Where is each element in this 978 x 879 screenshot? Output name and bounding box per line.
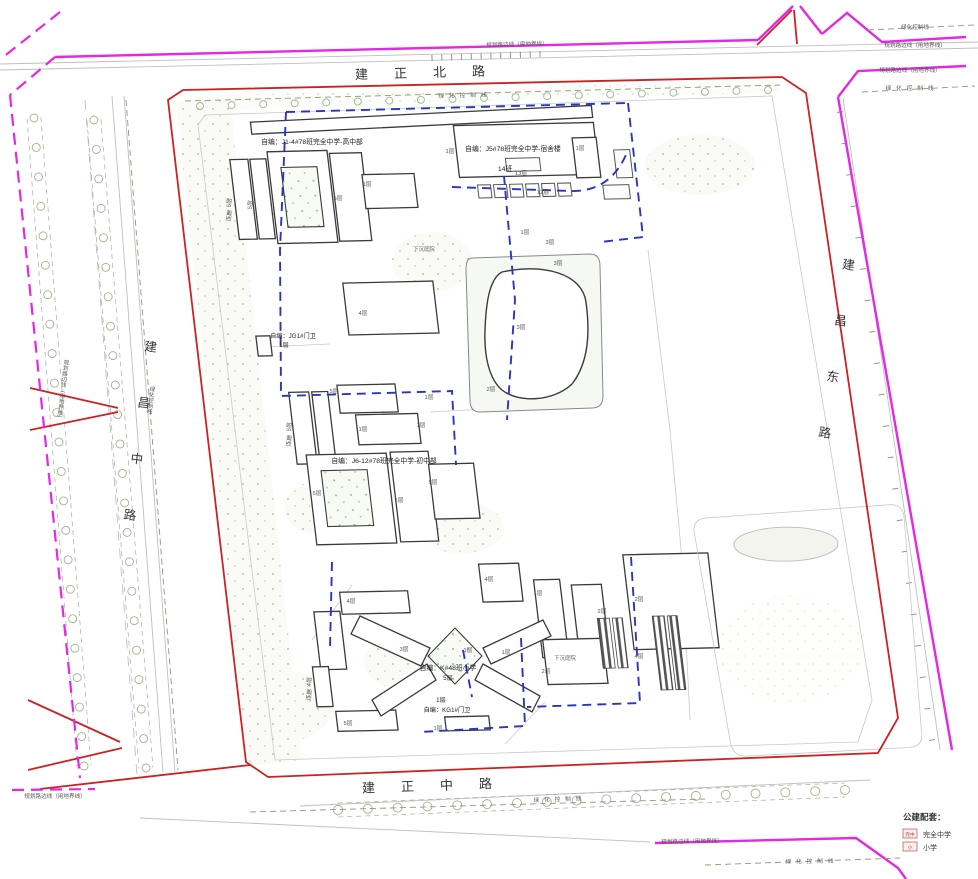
floor-tag: 5层 — [246, 200, 254, 210]
red-junction — [28, 748, 122, 770]
tree-tick — [878, 394, 884, 395]
building-center-4f — [343, 281, 439, 335]
tree — [97, 204, 105, 212]
tree — [751, 789, 760, 798]
planning-edge-label: 规划路边线（用地界线） — [879, 66, 941, 74]
tree-tick — [906, 583, 912, 584]
tree — [453, 801, 462, 810]
building-ms-se — [429, 463, 481, 519]
label-high-school: 自编：J1-4#78班完全中学-高中部 — [261, 137, 363, 146]
tree-tick — [855, 237, 861, 238]
site-plan: 建正北路 建正中路 建昌中路 建昌东路 自编：J1-4#78班完全中学-高中部 … — [0, 0, 978, 879]
floor-tag: 4层 — [305, 677, 313, 687]
label-gate-kg1-floors: 1层 — [436, 697, 446, 704]
floor-tag: 1层 — [394, 497, 403, 504]
label-gate-jg1-floors: 1层 — [279, 342, 289, 349]
south-road-curb — [140, 818, 650, 842]
ms-courtyard-green — [321, 470, 374, 527]
floor-tag: 2层 — [597, 608, 606, 615]
tree — [602, 795, 611, 804]
tree — [62, 526, 70, 534]
gate-kg1-building — [445, 716, 491, 731]
tree-tick — [929, 740, 935, 741]
floor-tag: 5层 — [333, 195, 342, 202]
tree-tick — [892, 488, 898, 489]
magenta-road-edge — [758, 6, 793, 40]
floor-tag: 1层 — [358, 426, 367, 433]
bike-shed — [509, 184, 524, 197]
tree — [811, 787, 820, 796]
hs-courtyard-green — [281, 167, 324, 228]
floor-tag: 2层 — [541, 668, 550, 675]
floor-tag: 连廊 — [284, 434, 293, 447]
tree — [35, 173, 43, 181]
tree — [66, 585, 74, 593]
tree — [44, 291, 52, 299]
tree — [142, 764, 150, 772]
building-dorm-east — [572, 137, 601, 177]
tree — [116, 440, 124, 448]
tree — [37, 202, 45, 210]
floor-tag: 3层 — [553, 260, 562, 267]
tree — [57, 467, 65, 475]
floor-tag: 3层 — [516, 324, 525, 331]
tree — [107, 322, 115, 330]
tree — [95, 175, 103, 183]
tree-strip-edge — [101, 119, 153, 767]
green-control-label: 绿化控制线 — [901, 23, 929, 31]
tree — [90, 116, 98, 124]
tree — [41, 261, 49, 269]
floor-tag: 5层 — [312, 490, 321, 497]
tree — [32, 143, 40, 151]
floor-tag: 5层 — [428, 479, 437, 486]
tree — [73, 674, 81, 682]
green-control-label: 绿化控制线 — [533, 794, 586, 804]
floor-tag: 5层 — [225, 198, 233, 208]
green-control-label: 绿化控制线 — [886, 84, 939, 92]
legend-label-middle-school: 完全中学 — [923, 830, 951, 839]
tree — [128, 587, 136, 595]
tree-tick — [874, 363, 880, 364]
label-dormitory: 自编：J5#78班完全中学-宿舍楼 — [465, 144, 561, 153]
legend-icon-middle-school-text: 完中 — [905, 831, 915, 838]
red-junction — [757, 10, 792, 45]
tree — [64, 556, 72, 564]
red-junction — [30, 388, 118, 408]
floor-tag: 1层 — [533, 590, 542, 597]
building-ne-small — [614, 150, 633, 178]
tree-tick — [869, 331, 875, 332]
tree — [30, 114, 38, 122]
planning-edge-label: 规划路边线（用地界线） — [661, 836, 723, 845]
floor-tag: 5层 — [285, 422, 293, 432]
tree — [78, 733, 86, 741]
red-junction — [794, 10, 797, 44]
planning-edge-label: 规划路边线（用地界线） — [884, 41, 946, 49]
label-sunken-courtyard: 下沉庭院 — [413, 245, 435, 253]
ps-courtyard-diamond — [428, 628, 482, 684]
tree — [140, 735, 148, 743]
building-ne-small — [603, 185, 631, 200]
tree — [69, 615, 77, 623]
magenta-dashed-edge — [10, 57, 55, 95]
red-junction — [40, 765, 250, 789]
floor-tag: 12层 — [537, 189, 549, 196]
legend-icon-primary-school-text: 小 — [908, 844, 913, 851]
floor-tag: 13层 — [515, 170, 527, 177]
west-road-center — [85, 100, 137, 775]
magenta-dashed-edge — [2, 12, 60, 58]
east-lot-building — [732, 526, 840, 562]
tree — [841, 786, 850, 795]
tree — [50, 379, 58, 387]
tree — [39, 232, 47, 240]
tree-tick — [924, 708, 930, 709]
building-hs-wing — [362, 173, 418, 208]
floor-tag: 4层 — [634, 653, 643, 660]
green-patch — [645, 135, 755, 195]
bike-shed — [477, 185, 492, 198]
floor-tag: 1层 — [433, 725, 442, 732]
tree — [48, 350, 56, 358]
tree — [75, 703, 83, 711]
label-dormitory-classes: 14班 — [498, 164, 513, 173]
floor-tag: 2层 — [486, 386, 495, 393]
legend: 公建配套： 完中 完全中学 小 小学 — [903, 812, 951, 852]
green-control-label: 绿化控制线 — [785, 857, 838, 866]
building-gym-blob — [485, 269, 588, 399]
tree — [133, 646, 141, 654]
floor-tag: 1层 — [520, 229, 529, 236]
tree-tick — [860, 269, 866, 270]
tree — [781, 788, 790, 797]
magenta-dashed-edge-west — [10, 95, 80, 778]
floor-tag: 2层 — [634, 596, 643, 603]
floor-tag: 1层 — [424, 394, 433, 401]
label-primary-school: 自编：K#48班小学 — [420, 663, 477, 672]
tree — [60, 497, 68, 505]
tree-tick — [865, 300, 871, 301]
magenta-road-edge — [800, 6, 822, 34]
label-gate-kg1: 自编：KG1#门卫 — [424, 706, 471, 714]
label-primary-school-floors: 5层 — [443, 675, 453, 682]
floor-tag: 4层 — [346, 598, 355, 605]
tree — [80, 762, 88, 770]
tree-tick — [888, 457, 894, 458]
tree-tick — [911, 614, 917, 615]
planning-edge-label-west: 规划路边线（用地界线） — [55, 358, 69, 421]
label-gate-jg1: 自编：JG1#门卫 — [270, 332, 316, 340]
floor-tag: 4层 — [358, 310, 367, 317]
road-name-north: 建正北路 — [355, 63, 511, 82]
floor-tag: 3层 — [399, 646, 408, 653]
tree-tick — [897, 520, 903, 521]
building-ps-wing — [475, 664, 540, 712]
bike-shed — [557, 183, 572, 196]
building-ms-north1 — [337, 384, 398, 413]
legend-label-primary-school: 小学 — [923, 843, 937, 852]
planning-edge-label: 规划路边线（用地界线） — [24, 792, 86, 800]
tree-tick — [915, 645, 921, 646]
floor-tag: 1层 — [501, 649, 510, 656]
floor-tag: 4层 — [484, 576, 493, 583]
tree — [118, 469, 126, 477]
tree — [721, 790, 730, 799]
floor-tag: 1层 — [416, 422, 425, 429]
tree — [71, 644, 79, 652]
floor-tag: 5层 — [343, 720, 352, 727]
tree — [46, 320, 54, 328]
label-middle-school: 自编：J6-12#78班完全中学-初中部 — [331, 456, 437, 465]
planning-edge-label: 规划路边线（用地界线） — [486, 39, 548, 49]
floor-tag: 1层 — [575, 145, 584, 152]
tree-tick — [883, 426, 889, 427]
legend-title: 公建配套： — [903, 812, 946, 822]
label-sunken-courtyard: 下沉庭院 — [554, 654, 576, 662]
tree — [109, 352, 117, 360]
floor-tag: 1层 — [445, 148, 454, 155]
tree — [104, 293, 112, 301]
magenta-dashed-edge — [12, 789, 95, 790]
tree — [130, 617, 138, 625]
tree — [111, 381, 119, 389]
tree — [137, 705, 145, 713]
tree — [92, 145, 100, 153]
tree-tick — [920, 677, 926, 678]
tree — [135, 676, 143, 684]
floor-tag: 1层 — [362, 181, 371, 188]
floor-tag: 5层 — [329, 388, 338, 395]
road-name-south: 建正中路 — [362, 775, 518, 795]
magenta-road-edge — [822, 13, 966, 42]
tree — [55, 438, 63, 446]
tree-strip-edge — [41, 117, 91, 765]
tree — [512, 798, 521, 807]
tree — [483, 800, 492, 809]
green-patch — [715, 595, 865, 705]
tree — [99, 234, 107, 242]
tree — [102, 263, 110, 271]
floor-tag: 1层 — [463, 647, 472, 654]
road-name-east: 建昌东路 — [810, 257, 856, 483]
floor-tag: 3层 — [545, 239, 554, 246]
path — [262, 344, 330, 347]
